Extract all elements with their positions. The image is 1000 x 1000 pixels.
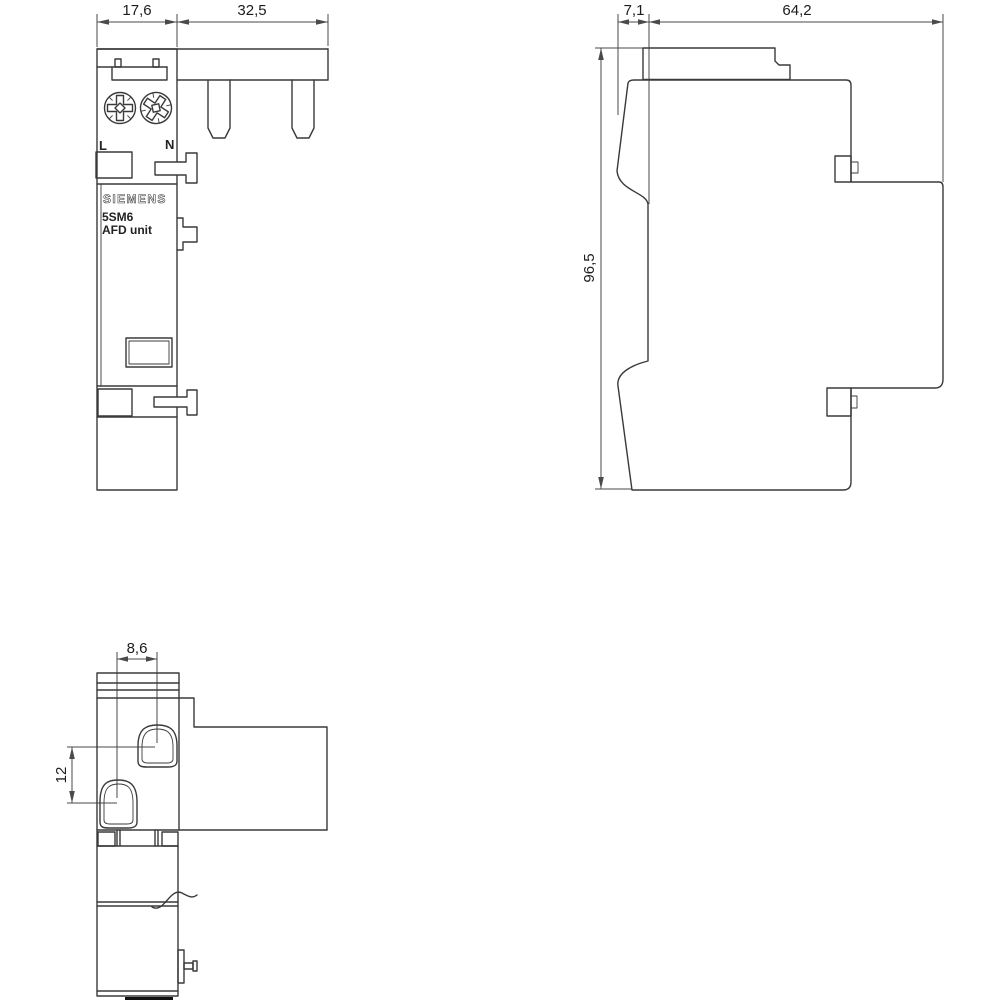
dimension-depth: 7,1 64,2 <box>618 2 943 204</box>
side-top-bar <box>643 48 790 80</box>
bottom-view: 8,6 12 <box>53 640 327 1000</box>
front-window <box>126 338 172 367</box>
brand-text: SIEMENS <box>103 192 167 206</box>
drawing-canvas: 17,6 32,5 <box>0 0 1000 1000</box>
din-clip-upper <box>155 153 197 183</box>
dim-label-terminal-dx: 8,6 <box>127 640 148 657</box>
front-view: 17,6 32,5 <box>96 2 328 490</box>
dim-label-nose-depth: 7,1 <box>624 2 645 19</box>
busbar-pin <box>208 80 230 138</box>
dim-label-busbar-width: 32,5 <box>237 2 266 19</box>
dim-label-total-depth: 64,2 <box>782 2 811 19</box>
dim-label-total-height: 96,5 <box>581 253 598 282</box>
dimension-height: 96,5 <box>581 48 643 489</box>
dimension-terminal-dy: 12 <box>53 747 155 803</box>
dimension-terminal-dx: 8,6 <box>117 640 157 798</box>
front-left-box <box>96 152 132 178</box>
bottom-side-tab <box>178 950 184 983</box>
busbar-assembly <box>97 49 328 138</box>
terminal-screw-l <box>105 93 136 124</box>
module-body-front: L N SIEMENS 5SM6 AFD unit <box>96 49 197 490</box>
dim-label-terminal-dy: 12 <box>53 767 70 784</box>
terminal-label-n: N <box>165 137 174 152</box>
dim-label-front-width: 17,6 <box>122 2 151 19</box>
din-clip-lower <box>154 390 197 415</box>
side-profile <box>617 80 943 490</box>
rear-block-upper <box>835 156 858 182</box>
model-text: 5SM6 <box>102 210 134 224</box>
side-view: 7,1 64,2 96,5 <box>581 2 943 490</box>
bottom-body <box>97 698 327 1000</box>
dimension-front-width: 17,6 32,5 <box>97 2 328 47</box>
terminal-opening-lower <box>100 780 137 828</box>
band-left-box <box>98 389 132 416</box>
model-sub-text: AFD unit <box>102 223 152 237</box>
busbar-pin <box>292 80 314 138</box>
side-knob <box>177 218 197 250</box>
bottom-cap <box>97 673 179 698</box>
terminal-label-l: L <box>99 138 107 153</box>
terminal-screw-n <box>135 87 178 130</box>
rear-block-lower <box>827 388 857 416</box>
technical-drawing: 17,6 32,5 <box>0 0 1000 1000</box>
